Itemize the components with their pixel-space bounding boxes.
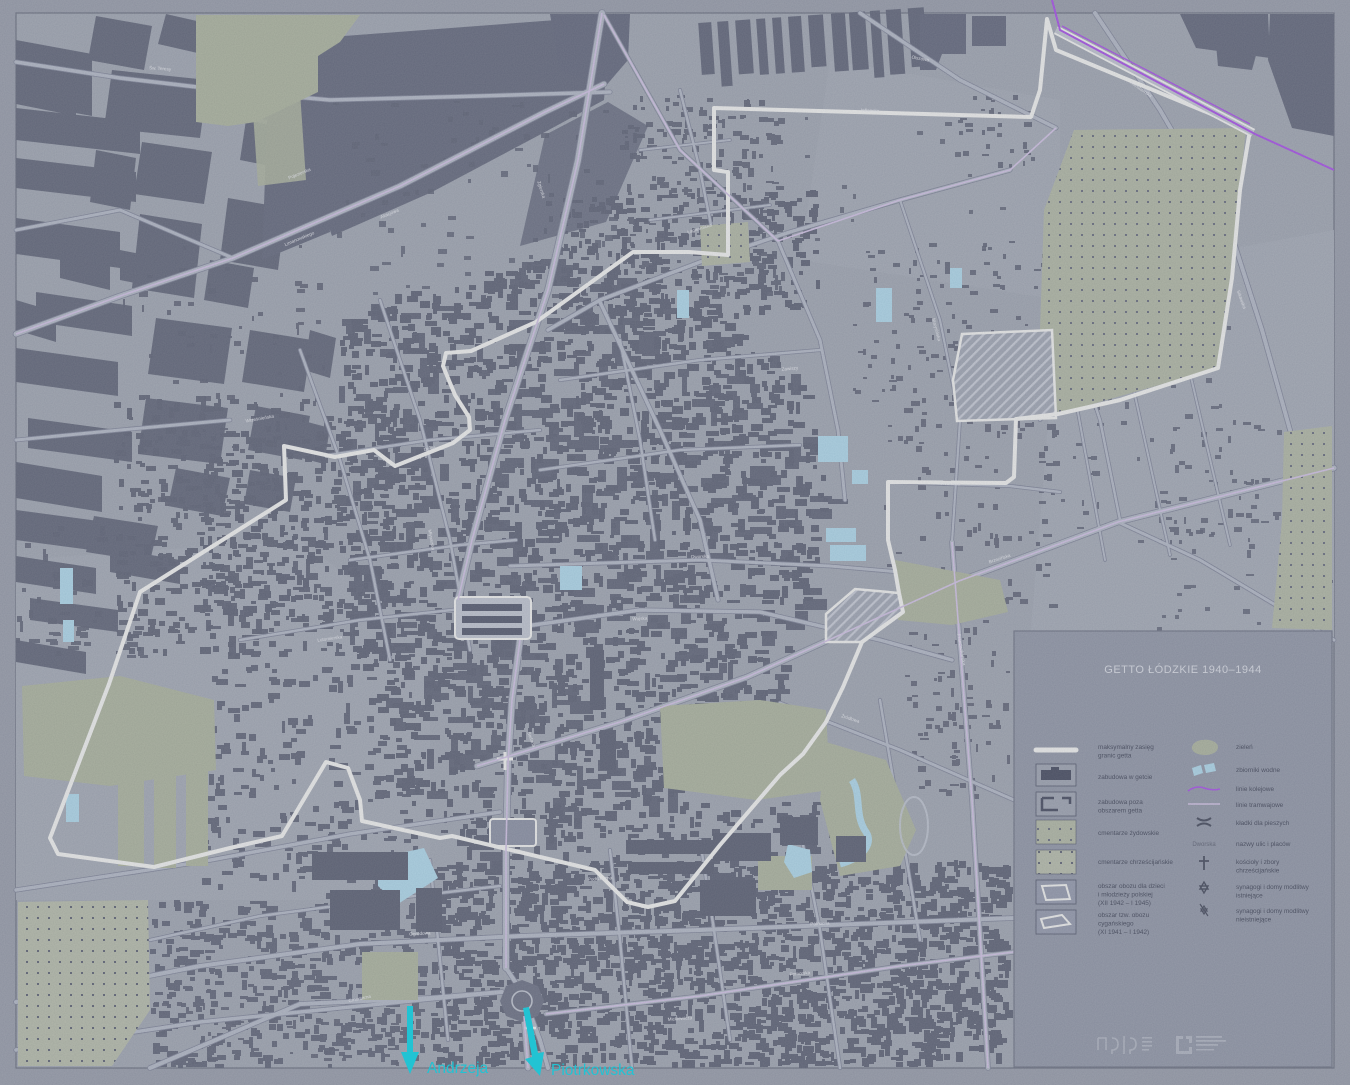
svg-text:Piotrkowska: Piotrkowska [551, 1062, 635, 1079]
svg-text:Andrzeja: Andrzeja [427, 1060, 489, 1077]
